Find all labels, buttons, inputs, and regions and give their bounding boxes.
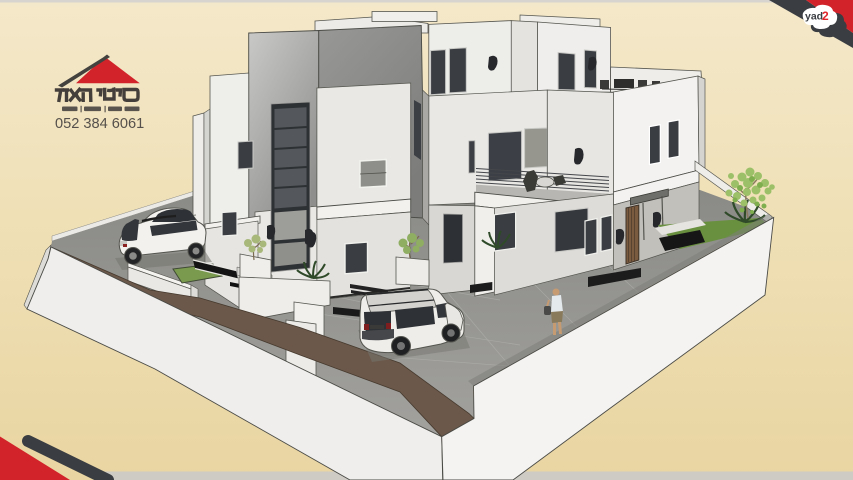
svg-text:052 384 6061: 052 384 6061 <box>55 116 144 132</box>
svg-text:2: 2 <box>822 9 829 23</box>
svg-text:yad: yad <box>805 11 823 23</box>
